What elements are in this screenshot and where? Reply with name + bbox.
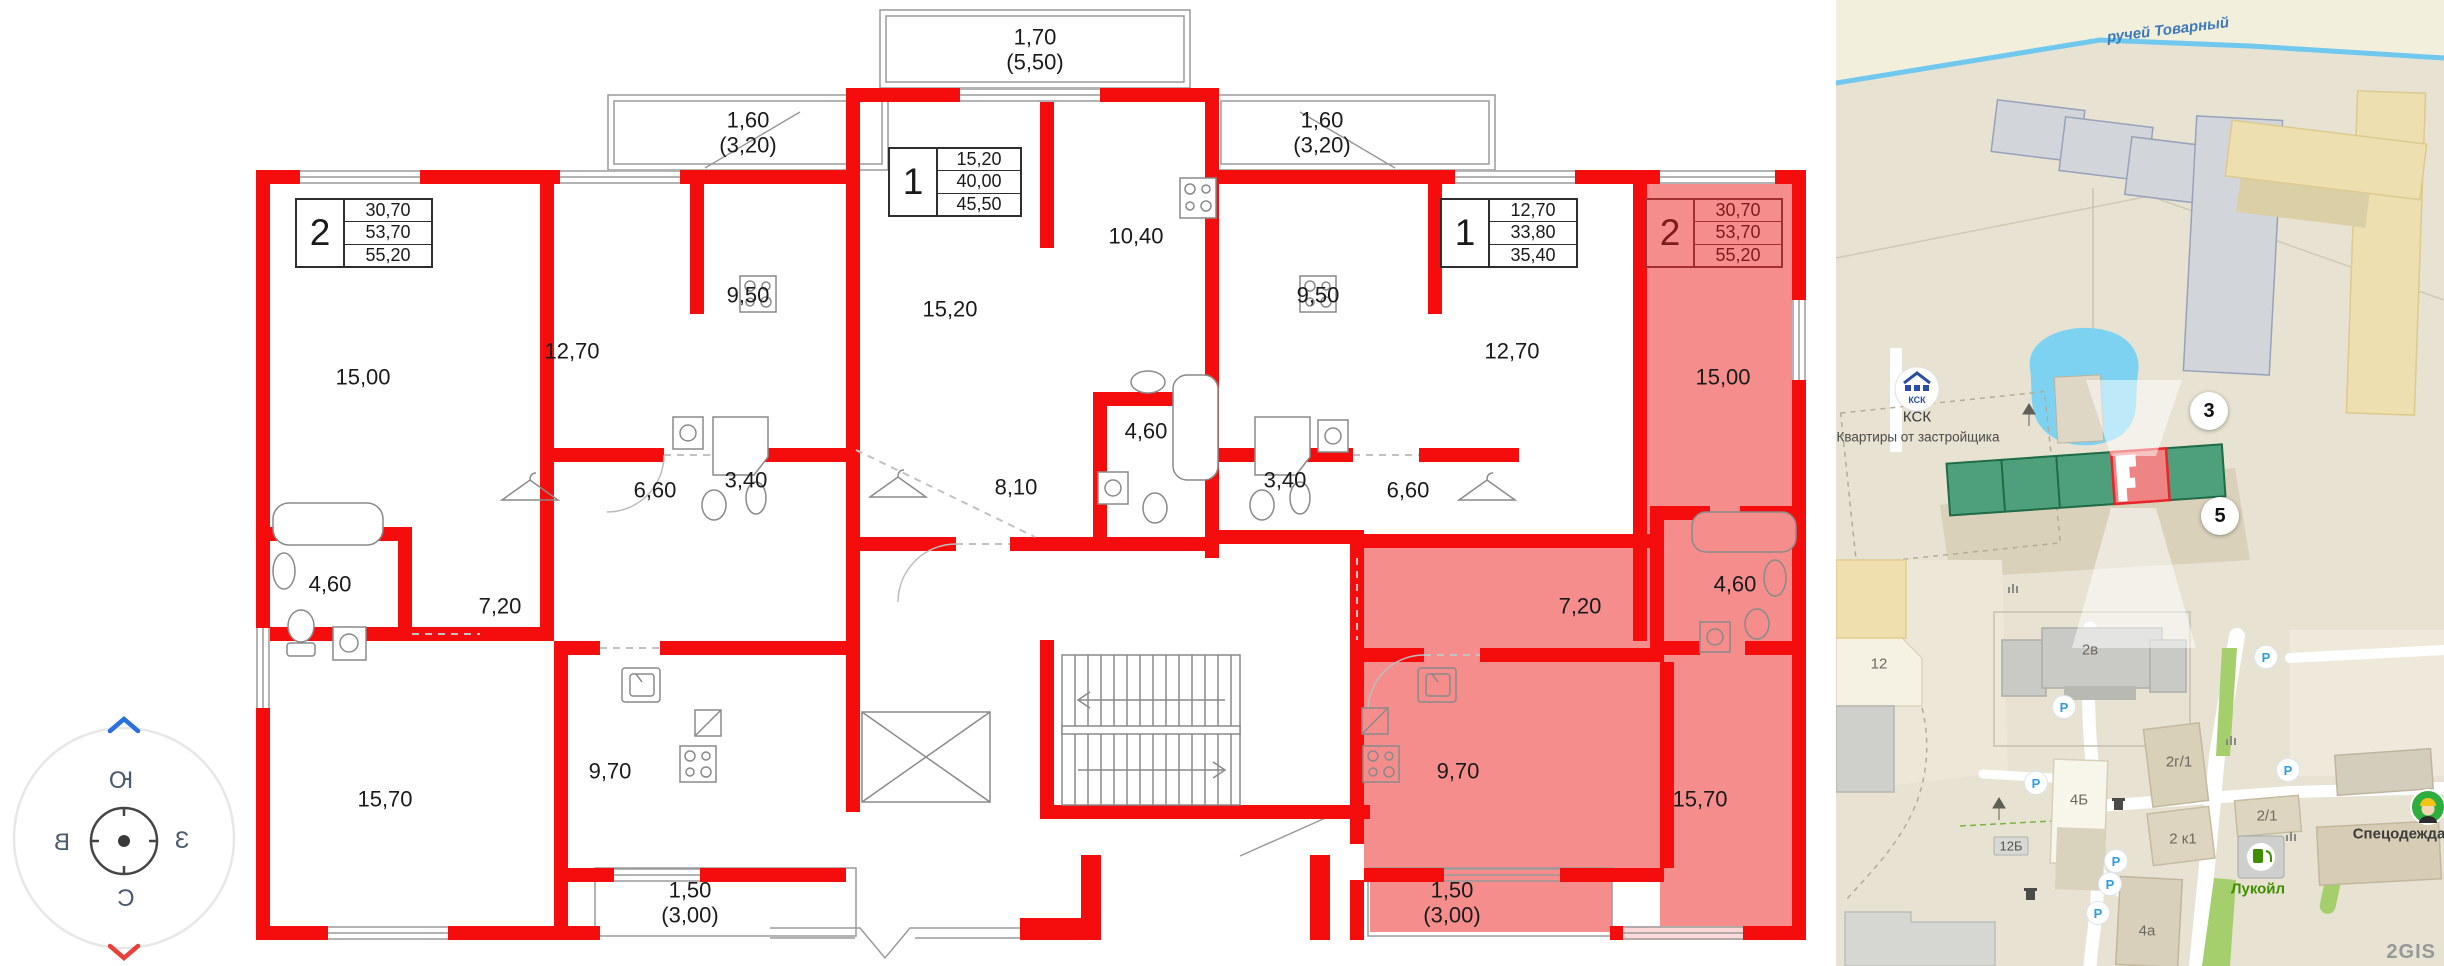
compass-south-letter: Ю [109,767,133,794]
rooms-count: 1 [1442,200,1488,266]
gas-station-icon[interactable] [2238,836,2284,878]
bathtub-icon [1173,375,1218,480]
ksk-logo-text: КСК [1908,395,1926,405]
sink-icon [273,553,295,589]
toilet-icon [1143,493,1167,523]
area-usable: 53,70 [345,222,431,244]
elevator [862,712,990,802]
toilet-icon [288,610,314,642]
area-living: 30,70 [345,200,431,222]
apartment-info-box[interactable]: 1 12,70 33,80 35,40 [1440,198,1578,268]
rooms-count: 2 [1647,200,1693,266]
compass-west-letter: З [175,827,190,854]
kitchen-sink-icon [622,668,1456,702]
stove-icon [680,178,1399,782]
toilet-icon [1250,490,1274,520]
entrance-badge[interactable]: 3 [2190,392,2228,430]
area-living: 30,70 [1695,200,1781,222]
rooms-count: 2 [297,200,343,266]
map[interactable]: КСК [1836,0,2444,966]
area-usable: 53,70 [1695,222,1781,244]
floor-plan-viewer: { "compass": {"top": "Ю", "left": "В", "… [0,0,2444,966]
sink-icon [1764,560,1786,596]
toilet-icon [702,490,726,520]
workwear-store-icon[interactable] [2411,790,2444,824]
shower-icon [713,417,768,475]
area-total: 55,20 [345,245,431,266]
apartment-info-box-selected[interactable]: 2 30,70 53,70 55,20 [1645,198,1783,268]
area-total: 35,40 [1490,245,1576,266]
sink-icon [746,482,766,514]
compass-north-letter: С [117,885,134,912]
sink-icon [1131,371,1165,393]
area-total: 45,50 [938,194,1020,215]
entrance-badge[interactable]: 5 [2201,497,2239,535]
apartment-info-box[interactable]: 1 15,20 40,00 45,50 [888,147,1022,217]
hanger-icon [502,470,1515,500]
toilet-icon [1745,609,1769,639]
area-usable: 33,80 [1490,222,1576,244]
ksk-logo[interactable]: КСК [1895,367,1939,411]
area-living: 15,20 [938,149,1020,171]
area-living: 12,70 [1490,200,1576,222]
floor-plan: Ю В З С [0,0,1836,966]
sink-icon [1290,482,1310,514]
compass: Ю В З С [14,719,234,958]
shower-icon [1255,417,1310,475]
staircase [1062,655,1240,805]
area-total: 55,20 [1695,245,1781,266]
rooms-count: 1 [890,149,936,215]
bathtub-icon [273,503,383,545]
compass-east-letter: В [54,829,70,856]
area-usable: 40,00 [938,171,1020,193]
apartment-info-box[interactable]: 2 30,70 53,70 55,20 [295,198,433,268]
bathtub-icon [1692,512,1796,552]
